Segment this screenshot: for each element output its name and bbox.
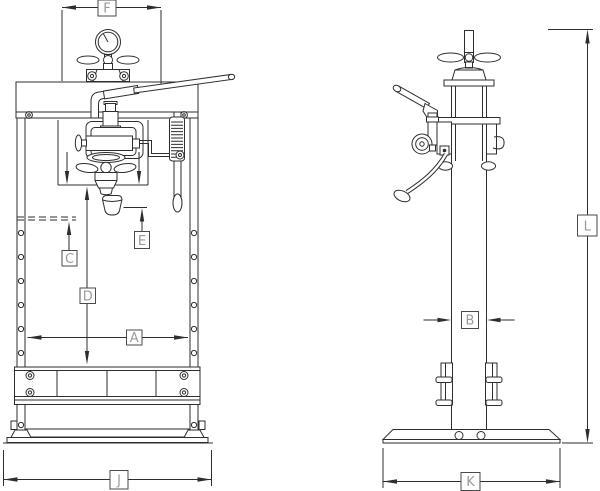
arrowhead: [198, 477, 212, 481]
top-flange: [444, 80, 494, 86]
arrowhead: [62, 5, 76, 9]
base-plate: [383, 430, 560, 444]
base-channel: [7, 438, 208, 443]
bed-bolt: [26, 389, 34, 397]
dimension-label-D: D: [83, 290, 93, 305]
ram-nose-tip: [100, 188, 113, 195]
ram-barrel: [86, 136, 133, 151]
crank-arm: [407, 154, 446, 192]
valve-wing-right: [117, 56, 139, 64]
base-hole: [477, 432, 485, 440]
clamp-pin: [436, 377, 452, 383]
valve-bracket: [93, 70, 123, 82]
column-cap: [452, 70, 486, 80]
arrowhead: [487, 318, 501, 322]
dimension-J: J: [4, 450, 212, 489]
arrowhead: [65, 171, 69, 185]
t-handle: [438, 31, 501, 69]
column-body: [452, 86, 487, 430]
tube-fitting: [430, 145, 436, 151]
side-bracket: [487, 124, 497, 154]
arrowhead: [147, 5, 161, 9]
valve-stem: [104, 64, 113, 70]
handle-end: [228, 74, 235, 80]
hydraulic-pipe: [140, 141, 171, 157]
bed-bolt: [180, 389, 188, 397]
crank-handle: [392, 154, 446, 204]
clamp-pin: [486, 400, 502, 406]
dimension-C: C: [17, 217, 77, 267]
dimension-label-K: K: [466, 475, 475, 490]
arrowhead: [137, 171, 141, 185]
release-valve: [77, 56, 139, 82]
base-edge: [383, 440, 560, 444]
arrowhead: [67, 222, 71, 236]
clamp-right: [486, 363, 498, 405]
t-handle-bar: [465, 31, 474, 54]
reference-centerline: [17, 217, 76, 220]
spring-rod: [174, 161, 181, 197]
base-hole: [455, 432, 463, 440]
spring-rod-tip: [173, 194, 182, 212]
arrowhead: [546, 479, 560, 483]
clamp-pin: [436, 400, 452, 406]
dimension-A: A: [28, 330, 189, 346]
t-handle-wing-right: [475, 53, 501, 62]
dimension-label-A: A: [130, 331, 139, 346]
bed-lower-rail: [15, 400, 201, 405]
clamp-pin: [486, 377, 502, 383]
press-pin-adapter: [103, 196, 123, 216]
t-handle-wing-left: [438, 53, 464, 62]
dimension-E: E: [124, 208, 150, 250]
dimension-K: K: [383, 448, 560, 491]
side-view: [383, 31, 560, 444]
leg-tab-right: [199, 421, 205, 430]
dimension-label-B: B: [466, 314, 475, 329]
dimension-B: B: [424, 312, 515, 329]
valve-wing-left: [77, 56, 99, 64]
arrowhead: [585, 30, 589, 44]
bed-bolt: [180, 372, 188, 380]
dimension-label-E: E: [138, 234, 146, 249]
tube-band: [427, 117, 439, 122]
arrowhead: [28, 335, 42, 339]
drawing-canvas: F C D E: [0, 0, 600, 491]
dimension-label-J: J: [116, 474, 121, 489]
clamps: [436, 363, 502, 406]
pressure-gauge: [96, 30, 121, 59]
press-bed: [15, 367, 201, 405]
arrowhead: [4, 477, 18, 481]
valve-ear-bolt: [88, 72, 97, 81]
clamp-left: [441, 363, 453, 405]
dimension-L: L: [548, 30, 597, 444]
arrowhead: [438, 318, 452, 322]
base-legs: [3, 421, 213, 443]
dimension-label-L: L: [584, 220, 592, 235]
wing-peg-right: [482, 162, 496, 170]
arrowhead: [85, 351, 89, 365]
dimension-label-F: F: [103, 2, 110, 17]
ram-assembly: [76, 153, 137, 216]
leg-tab-left: [11, 421, 17, 430]
outlet-fitting: [133, 139, 140, 148]
base-top: [383, 430, 560, 440]
arrowhead: [140, 208, 144, 222]
press-technical-drawing: F C D E: [0, 0, 600, 491]
arrowhead: [585, 429, 589, 443]
arrowhead: [85, 187, 89, 201]
foot-left: [11, 430, 31, 438]
spring-pin: [176, 151, 184, 159]
leg-crossbar: [26, 429, 190, 437]
front-view: [3, 30, 235, 444]
arrowhead: [174, 335, 188, 339]
valve-ear-bolt: [120, 72, 129, 81]
bed-bolt: [26, 372, 34, 380]
foot-right: [184, 430, 204, 438]
ram-hub: [101, 162, 111, 172]
dimension-label-C: C: [65, 252, 74, 267]
bleed-screw: [75, 135, 81, 151]
return-spring: [170, 112, 185, 212]
arrowhead: [383, 479, 397, 483]
